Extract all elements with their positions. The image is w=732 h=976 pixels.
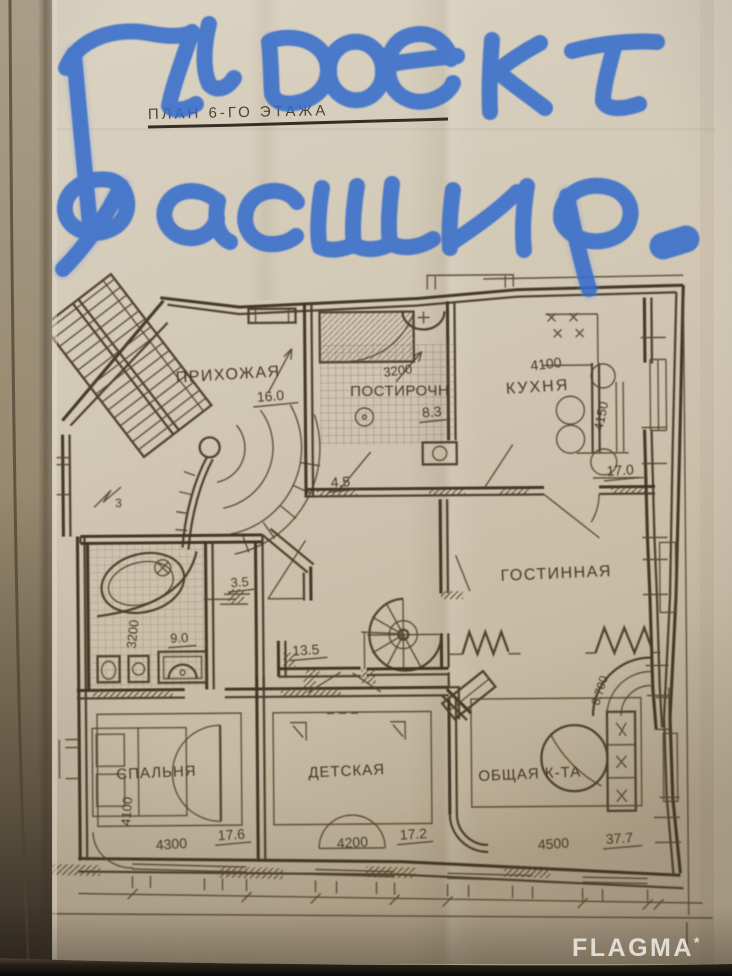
svg-text:4100: 4100: [118, 796, 135, 826]
svg-text:17.0: 17.0: [606, 461, 634, 479]
svg-text:9.0: 9.0: [170, 630, 189, 646]
svg-text:8.3: 8.3: [421, 403, 442, 420]
svg-text:16.0: 16.0: [256, 387, 285, 405]
svg-text:FLAGMA*: FLAGMA*: [572, 934, 702, 962]
svg-text:4200: 4200: [336, 833, 368, 851]
svg-text:3: 3: [115, 496, 122, 510]
svg-text:17.6: 17.6: [217, 826, 245, 844]
svg-text:4500: 4500: [537, 835, 569, 853]
svg-text:37.7: 37.7: [605, 829, 633, 847]
svg-text:13.5: 13.5: [292, 641, 320, 659]
svg-text:3.5: 3.5: [230, 574, 249, 590]
svg-text:СПАЛЬНЯ: СПАЛЬНЯ: [116, 763, 197, 783]
svg-text:4300: 4300: [155, 835, 187, 853]
svg-text:4,5: 4,5: [330, 473, 351, 490]
svg-text:ДЕТСКАЯ: ДЕТСКАЯ: [308, 761, 385, 781]
svg-text:ПОСТИРОЧН: ПОСТИРОЧН: [350, 382, 449, 400]
svg-text:17.2: 17.2: [399, 825, 427, 843]
